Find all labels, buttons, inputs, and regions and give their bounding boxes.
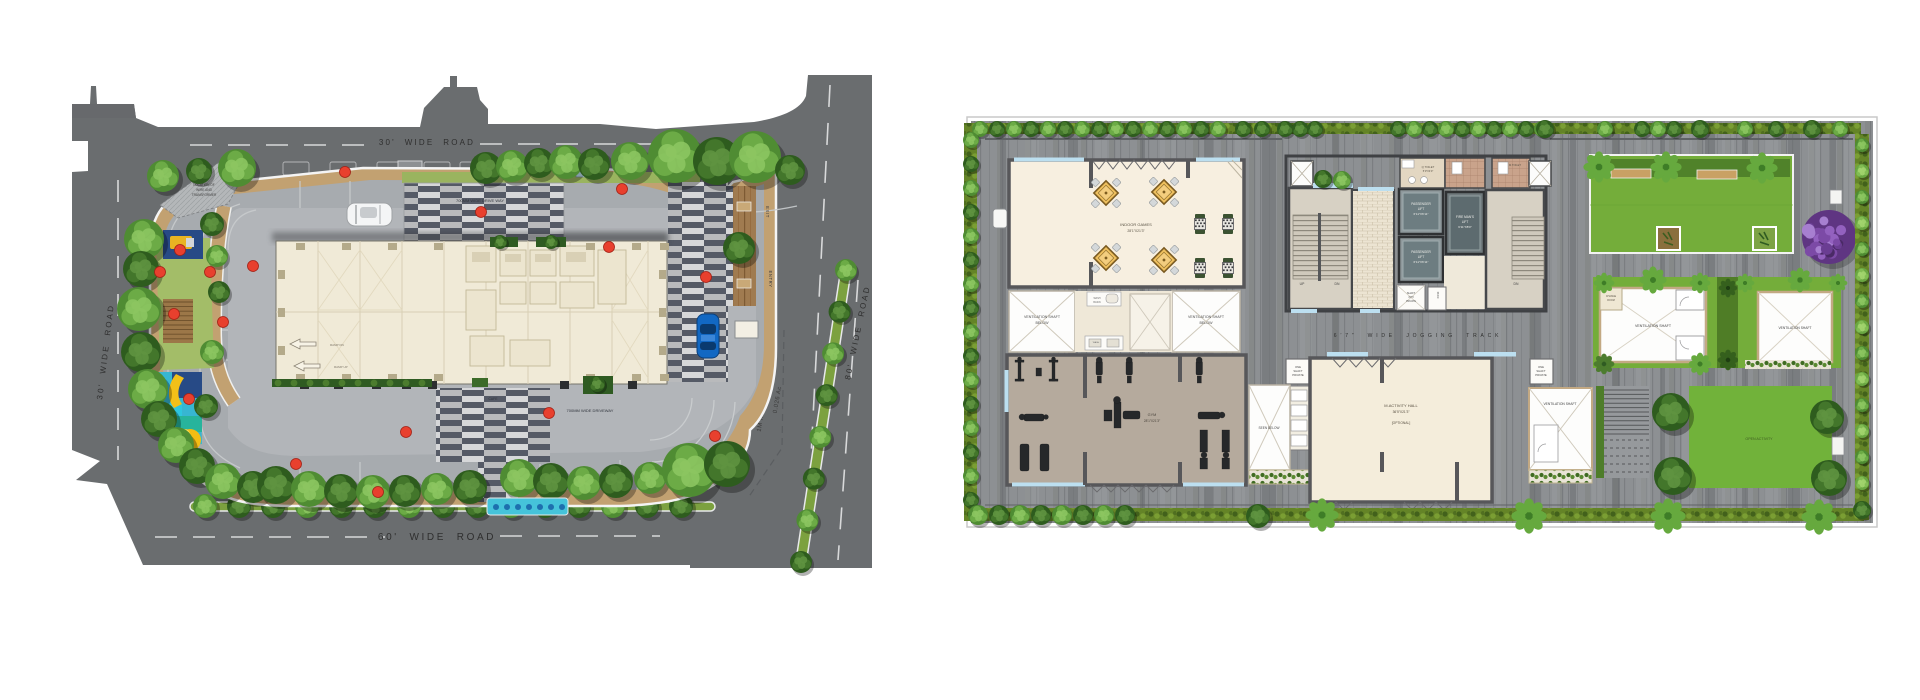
svg-text:STAIR: STAIR <box>1436 292 1439 299</box>
svg-text:GYM: GYM <box>1148 413 1157 417</box>
svg-text:TRANSFORMER: TRANSFORMER <box>192 193 217 197</box>
svg-text:UP: UP <box>1300 282 1305 286</box>
svg-text:LIFT: LIFT <box>1418 207 1425 211</box>
svg-text:6’11”X6’11”: 6’11”X6’11” <box>1414 212 1429 216</box>
svg-text:WASH: WASH <box>1093 297 1100 300</box>
svg-text:OPEN ACTIVITY: OPEN ACTIVITY <box>1745 437 1773 441</box>
svg-text:SHAFT: SHAFT <box>1407 291 1416 295</box>
svg-text:5’0”X4’0”: 5’0”X4’0” <box>1423 169 1434 173</box>
svg-text:PASSENGER: PASSENGER <box>1411 250 1431 254</box>
svg-text:BELOW: BELOW <box>1036 321 1050 325</box>
svg-text:ROOM: ROOM <box>1607 299 1614 302</box>
svg-text:WASH: WASH <box>1093 341 1100 344</box>
svg-text:M.TOILET: M.TOILET <box>1509 163 1521 167</box>
svg-text:60' WIDE ROAD: 60' WIDE ROAD <box>378 532 496 543</box>
svg-text:SEEN BELOW: SEEN BELOW <box>1258 426 1279 430</box>
svg-text:M.ACTIVITY HALL: M.ACTIVITY HALL <box>1384 403 1418 408</box>
svg-text:6’7” WIDE JOGGING TRACK: 6’7” WIDE JOGGING TRACK <box>1334 333 1502 339</box>
svg-text:Q TOILET: Q TOILET <box>1422 165 1435 169</box>
svg-text:PRIVATE: PRIVATE <box>1292 373 1304 377</box>
svg-text:6’11”X8’0”: 6’11”X8’0” <box>1458 225 1471 229</box>
svg-text:700MM WIDE DRIVE WAY: 700MM WIDE DRIVE WAY <box>456 198 504 203</box>
svg-text:RAMP DN: RAMP DN <box>330 343 344 347</box>
svg-text:EXIT: EXIT <box>765 206 770 218</box>
svg-text:FIRE MAN’S: FIRE MAN’S <box>1456 215 1474 219</box>
svg-text:VENTILATION SHAFT: VENTILATION SHAFT <box>1635 324 1672 328</box>
svg-text:28’1”X21’3”: 28’1”X21’3” <box>1144 419 1160 423</box>
svg-text:ENTRY: ENTRY <box>768 270 773 287</box>
svg-text:6’11”X6’11”: 6’11”X6’11” <box>1414 260 1429 264</box>
svg-text:PRIVATE: PRIVATE <box>1535 373 1547 377</box>
svg-text:INDOOR GAMES: INDOOR GAMES <box>1120 222 1152 227</box>
svg-text:30' WIDE ROAD: 30' WIDE ROAD <box>379 138 475 147</box>
svg-text:CAFE: CAFE <box>488 397 498 401</box>
svg-text:VENTILATION SHAFT: VENTILATION SHAFT <box>1024 315 1061 319</box>
svg-text:36’5”X21’3”: 36’5”X21’3” <box>1393 410 1410 414</box>
svg-text:LIFT: LIFT <box>1418 255 1425 259</box>
svg-text:VENTILATION SHAFT: VENTILATION SHAFT <box>1778 326 1811 330</box>
svg-text:VENTILATION SHAFT: VENTILATION SHAFT <box>1543 402 1576 406</box>
svg-text:CHANGE: CHANGE <box>1606 295 1617 298</box>
svg-text:700MM WIDE DRIVEWAY: 700MM WIDE DRIVEWAY <box>567 408 614 413</box>
svg-text:PRIVATE: PRIVATE <box>1406 300 1416 303</box>
svg-text:BASIN: BASIN <box>1093 301 1100 304</box>
svg-text:4’0”X: 4’0”X <box>1408 296 1414 299</box>
svg-text:DN: DN <box>1514 282 1519 286</box>
svg-text:WIRE AND: WIRE AND <box>196 188 212 192</box>
svg-text:DN: DN <box>1335 282 1340 286</box>
svg-text:[OPTIONAL]: [OPTIONAL] <box>1392 421 1411 425</box>
svg-text:28’1”X21’3”: 28’1”X21’3” <box>1127 229 1144 233</box>
svg-text:LIFT: LIFT <box>1462 220 1469 224</box>
svg-text:RAMP UP: RAMP UP <box>334 365 348 369</box>
svg-text:VENTILATION SHAFT: VENTILATION SHAFT <box>1188 315 1225 319</box>
svg-text:BELOW: BELOW <box>1200 321 1214 325</box>
svg-text:PASSENGER: PASSENGER <box>1411 202 1431 206</box>
